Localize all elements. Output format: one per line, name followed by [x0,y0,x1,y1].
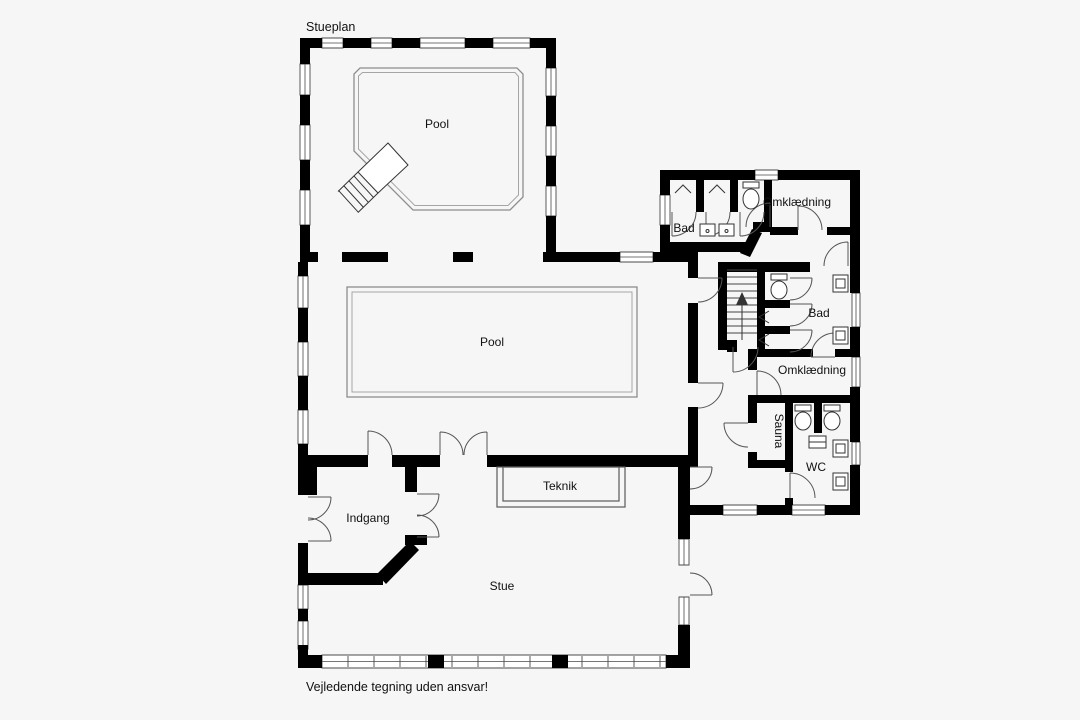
sink-icon [719,224,734,236]
diving-board [358,143,408,193]
room-label-sauna: Sauna [772,414,786,449]
toilet-icon [824,405,840,430]
room-label-indgang: Indgang [346,511,389,525]
door-indgang-poolhall [368,431,392,455]
door-entrance-leaf2 [308,518,331,541]
room-label-bad-upper: Bad [673,221,694,235]
room-label-bad-mid: Bad [808,306,829,320]
shower-icon [675,185,691,193]
urinal-icon [809,436,826,448]
room-label-pool-main: Pool [480,335,504,349]
door-vestibule [824,242,848,266]
door-sauna [724,423,748,447]
room-label-omklaedning-mid: Omklædning [778,363,846,377]
sink-icon [833,473,848,490]
plan-title: Stueplan [306,20,355,34]
door-poolhall-corridor-low [698,383,723,408]
toilet-icon [795,405,811,430]
sink-icon [833,327,848,344]
sink-icon [833,275,848,292]
shower-icon [709,185,725,193]
door-badmid-omklaedning [811,333,835,357]
door-midstall-shower2 [790,330,812,352]
door-midstall-wc [790,278,812,300]
door-poolhall-double-left [440,432,463,455]
door-poolhall-double-right [464,432,487,455]
toilet-icon [743,182,759,209]
door-entrance-leaf1 [308,497,331,520]
room-label-stue: Stue [490,579,515,593]
door-indgang-stue-leaf1 [417,494,439,516]
floorplan-svg: Stueplan Pool Pool Bad Omklædning Bad Om… [0,0,1080,720]
door-indgang-stue-leaf2 [417,515,439,537]
stairs [727,270,757,340]
door-wc [790,473,815,498]
walls [298,38,860,668]
door-omklaedning-upper-south [798,206,822,230]
door-stue-terrace [690,573,712,595]
diving-board-icon [338,143,408,213]
room-label-omklaedning-upper: Omklædning [763,195,831,209]
floorplan-canvas: Stueplan Pool Pool Bad Omklædning Bad Om… [0,0,1080,720]
wall-diagonal-indgang [377,541,419,584]
stair-arrow-head [736,292,748,305]
door-passage [690,467,712,489]
sink-icon [700,224,715,236]
toilet-icon [771,274,787,299]
room-label-teknik: Teknik [543,479,578,493]
sink-icon [833,440,848,457]
disclaimer-text: Vejledende tegning uden ansvar! [306,680,488,694]
room-label-wc: WC [806,460,826,474]
room-label-pool-upper: Pool [425,117,449,131]
